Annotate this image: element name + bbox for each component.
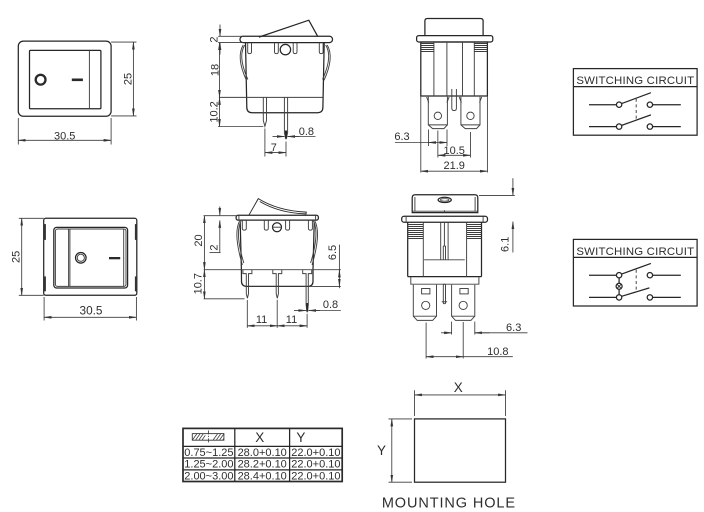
svg-text:0.75~1.25: 0.75~1.25 bbox=[184, 447, 233, 459]
svg-text:6.3: 6.3 bbox=[506, 322, 521, 334]
svg-text:25: 25 bbox=[123, 73, 135, 85]
svg-text:22.0+0.10: 22.0+0.10 bbox=[291, 471, 340, 483]
svg-text:28.2+0.10: 28.2+0.10 bbox=[238, 459, 287, 471]
svg-text:10.7: 10.7 bbox=[192, 273, 204, 294]
svg-text:11: 11 bbox=[256, 314, 267, 326]
svg-text:22.0+0.10: 22.0+0.10 bbox=[291, 459, 340, 471]
svg-text:22.0+0.10: 22.0+0.10 bbox=[291, 447, 340, 459]
svg-text:0.8: 0.8 bbox=[299, 126, 314, 138]
svg-text:28.0+0.10: 28.0+0.10 bbox=[238, 447, 287, 459]
svg-text:SWITCHING CIRCUIT: SWITCHING CIRCUIT bbox=[576, 75, 694, 87]
svg-text:Y: Y bbox=[377, 443, 386, 458]
svg-text:2: 2 bbox=[209, 244, 221, 250]
svg-text:SWITCHING CIRCUIT: SWITCHING CIRCUIT bbox=[576, 246, 694, 258]
svg-text:20: 20 bbox=[193, 234, 205, 246]
svg-text:MOUNTING HOLE: MOUNTING HOLE bbox=[382, 496, 516, 512]
svg-text:2.00~3.00: 2.00~3.00 bbox=[184, 471, 233, 483]
svg-text:30.5: 30.5 bbox=[80, 304, 103, 318]
svg-text:2: 2 bbox=[208, 36, 220, 42]
svg-text:25: 25 bbox=[10, 251, 22, 263]
svg-text:10.8: 10.8 bbox=[487, 346, 508, 358]
svg-text:Y: Y bbox=[296, 430, 305, 445]
svg-text:X: X bbox=[255, 430, 264, 445]
svg-text:10.5: 10.5 bbox=[443, 145, 464, 157]
svg-text:0.8: 0.8 bbox=[323, 299, 338, 311]
svg-text:10.2: 10.2 bbox=[209, 101, 221, 122]
svg-text:7: 7 bbox=[271, 142, 277, 154]
svg-text:X: X bbox=[454, 380, 463, 395]
svg-text:18: 18 bbox=[209, 64, 221, 76]
svg-text:1.25~2.00: 1.25~2.00 bbox=[184, 459, 233, 471]
svg-text:6.5: 6.5 bbox=[327, 245, 339, 260]
svg-text:11: 11 bbox=[286, 314, 297, 326]
svg-text:28.4+0.10: 28.4+0.10 bbox=[238, 471, 287, 483]
svg-text:6.1: 6.1 bbox=[500, 237, 512, 252]
svg-text:6.3: 6.3 bbox=[394, 131, 409, 143]
svg-text:21.9: 21.9 bbox=[443, 160, 464, 172]
svg-text:30.5: 30.5 bbox=[54, 130, 75, 142]
